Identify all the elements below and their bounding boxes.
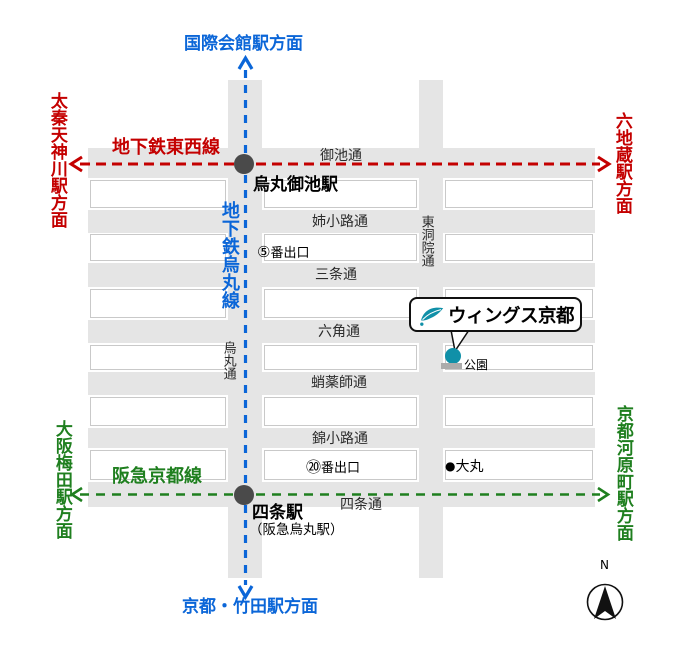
wings-kyoto-callout: ウィングス京都 [409,297,582,332]
daimaru-text: 大丸 [455,459,483,475]
exit-20-number-icon: ⑳ [306,458,321,476]
street-label-oike: 御池通 [320,149,362,164]
direction-tozai-east: 六地蔵駅方面 [612,112,630,214]
tozai-line-label: 地下鉄東西線 [112,139,220,158]
shijo-station-label: 四条駅 [252,505,303,523]
park-label: 公園 [464,359,488,372]
daimaru-label: ●大丸 [445,460,483,475]
daimaru-dot-icon: ● [445,459,455,473]
exit-5-text: 番出口 [270,246,309,261]
street-label-higashinotoin: 東洞院通 [419,215,433,267]
wings-callout-pointer [451,330,469,351]
exit-5-label: ⑤番出口 [257,245,309,261]
direction-hankyu-east: 京都河原町駅方面 [613,405,631,541]
compass-north-label: N [600,559,609,572]
street-label-aneyakoji: 姉小路通 [312,215,368,230]
street-label-rokkaku: 六角通 [318,325,360,340]
exit-20-label: ⑳番出口 [306,460,360,476]
hankyu-line-label: 阪急京都線 [112,468,202,487]
street-label-nishikikoji: 錦小路通 [312,432,368,447]
karasuma-south-arrow-icon [239,586,252,597]
direction-hankyu-west: 大阪梅田駅方面 [52,420,70,539]
shijo-station-dot [234,485,254,505]
park-icon [441,363,462,369]
direction-south: 京都・竹田駅方面 [182,599,318,617]
kyoto-access-map: 国際会館駅方面 京都・竹田駅方面 太秦天神川駅方面 六地蔵駅方面 大阪梅田駅方面… [0,0,680,660]
karasuma-oike-station-label: 烏丸御池駅 [253,177,338,195]
direction-north: 国際会館駅方面 [184,36,303,54]
street-label-shijo: 四条通 [340,498,382,513]
direction-tozai-west: 太秦天神川駅方面 [47,92,65,228]
karasuma-line-label: 地下鉄烏丸線 [219,201,238,309]
exit-5-number-icon: ⑤ [257,243,270,261]
wings-kyoto-name: ウィングス京都 [448,302,574,328]
street-label-karasuma: 烏丸通 [221,341,235,380]
karasuma-oike-station-dot [234,154,254,174]
shijo-station-alt-label: （阪急烏丸駅） [249,523,344,537]
street-label-takoyakushi: 蛸薬師通 [311,376,367,391]
wings-location-dot [445,348,461,364]
wings-kyoto-logo-icon [418,300,444,330]
karasuma-north-arrow-icon [239,58,252,69]
exit-20-text: 番出口 [321,461,360,476]
street-label-sanjo: 三条通 [315,268,357,283]
